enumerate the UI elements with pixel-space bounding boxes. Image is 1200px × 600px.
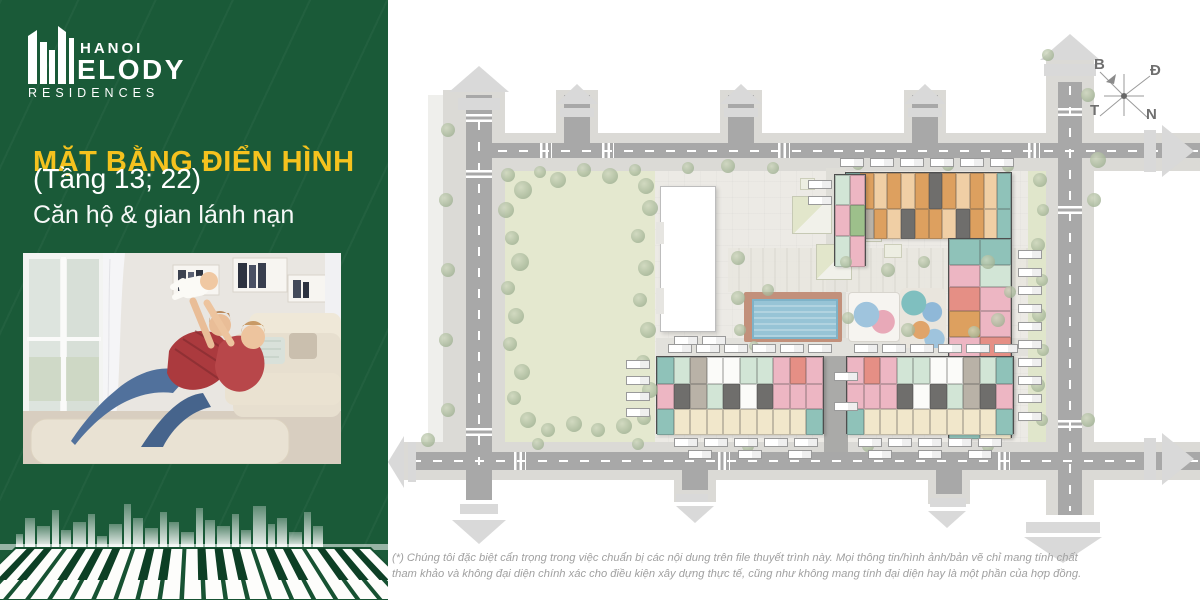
crosswalk bbox=[514, 452, 526, 470]
road-stub-south bbox=[466, 470, 492, 500]
tree-icon bbox=[1087, 193, 1101, 207]
brand-buildings-icon bbox=[28, 20, 74, 84]
tree-icon bbox=[421, 433, 435, 447]
apartment-unit bbox=[657, 409, 674, 435]
road-centerline bbox=[412, 460, 1198, 462]
unit-label-chip bbox=[968, 450, 992, 459]
tree-icon bbox=[1037, 204, 1049, 216]
unit-label-chip bbox=[870, 158, 894, 167]
tower-notch bbox=[656, 222, 664, 244]
tree-icon bbox=[721, 159, 735, 173]
apartment-unit bbox=[740, 409, 757, 435]
apartment-unit bbox=[930, 409, 947, 435]
brand-logo: HANOI ELODY RESIDENCES bbox=[28, 18, 328, 102]
road-arrow-up-icon bbox=[720, 84, 762, 104]
tree-icon bbox=[503, 337, 517, 351]
unit-label-chip bbox=[1018, 358, 1042, 367]
apartment-unit bbox=[690, 409, 707, 435]
apartment-unit bbox=[963, 384, 980, 409]
park-lawn bbox=[500, 163, 655, 448]
unit-label-chip bbox=[794, 438, 818, 447]
compass-east-label: Đ bbox=[1150, 62, 1161, 79]
apartment-unit bbox=[956, 173, 970, 209]
apartment-unit bbox=[963, 357, 980, 384]
unit-label-chip bbox=[978, 438, 1002, 447]
apartment-unit bbox=[880, 357, 897, 384]
tree-icon bbox=[638, 178, 654, 194]
unit-label-chip bbox=[938, 344, 962, 353]
road-arrow-right-icon bbox=[1162, 433, 1194, 485]
tree-icon bbox=[541, 423, 555, 437]
tree-icon bbox=[577, 163, 591, 177]
crosswalk bbox=[540, 143, 552, 158]
compass-north-label: B bbox=[1094, 56, 1105, 73]
road-arrow-bar bbox=[1144, 438, 1156, 480]
apartment-unit bbox=[757, 384, 774, 409]
apartment-unit bbox=[949, 239, 980, 265]
tree-icon bbox=[638, 260, 654, 276]
unit-label-chip bbox=[858, 438, 882, 447]
swimming-pool bbox=[752, 299, 838, 339]
tree-icon bbox=[731, 291, 745, 305]
brochure-page: HANOI ELODY RESIDENCES MẶT BẰNG ĐIỂN HÌN… bbox=[0, 0, 1200, 600]
apartment-unit bbox=[657, 357, 674, 384]
road-stub-south bbox=[936, 470, 962, 494]
road-arrow-left-icon bbox=[388, 436, 404, 488]
tower-footprint bbox=[660, 186, 716, 332]
disclaimer-text: (*) Chúng tôi đặc biệt cẩn trọng trong v… bbox=[392, 551, 1098, 582]
unit-label-chip bbox=[808, 196, 832, 205]
piano-skyline-svg bbox=[0, 498, 388, 600]
apartment-unit bbox=[913, 357, 930, 384]
apartment-unit bbox=[806, 409, 823, 435]
tree-icon bbox=[439, 333, 453, 347]
apartment-unit bbox=[773, 357, 790, 384]
tree-icon bbox=[762, 284, 774, 296]
apartment-unit bbox=[723, 357, 740, 384]
crosswalk bbox=[466, 428, 492, 439]
unit-label-chip bbox=[808, 344, 832, 353]
apartment-unit bbox=[757, 357, 774, 384]
apartment-unit bbox=[897, 384, 914, 409]
window bbox=[23, 253, 105, 429]
tree-icon bbox=[734, 324, 746, 336]
crosswalk bbox=[466, 170, 492, 181]
crosswalk bbox=[1058, 420, 1082, 431]
apartment-unit bbox=[740, 357, 757, 384]
tree-icon bbox=[505, 231, 519, 245]
road-arrow-down-icon bbox=[928, 511, 966, 528]
crosswalk bbox=[466, 114, 492, 125]
apartment-unit bbox=[835, 205, 850, 236]
apartment-unit bbox=[930, 384, 947, 409]
crosswalk bbox=[1028, 143, 1040, 158]
road-arrow-bar bbox=[676, 494, 708, 502]
road-arrow-bar bbox=[1026, 522, 1100, 533]
tree-icon bbox=[439, 193, 453, 207]
apartment-unit bbox=[980, 409, 997, 435]
apartment-unit bbox=[947, 384, 964, 409]
unit-label-chip bbox=[1018, 340, 1042, 349]
tree-icon bbox=[1081, 413, 1095, 427]
road-arrow-bar bbox=[408, 442, 416, 482]
tree-icon bbox=[1090, 152, 1106, 168]
tree-icon bbox=[731, 251, 745, 265]
road-arrow-bar bbox=[458, 98, 500, 110]
apartment-unit bbox=[996, 357, 1013, 384]
road-arrow-bar bbox=[930, 498, 966, 507]
tree-icon bbox=[629, 164, 641, 176]
apartment-unit bbox=[674, 409, 691, 435]
unit-label-chip bbox=[1018, 394, 1042, 403]
tree-icon bbox=[550, 172, 566, 188]
apartment-unit bbox=[887, 173, 901, 209]
tree-icon bbox=[498, 202, 514, 218]
apartment-unit bbox=[864, 384, 881, 409]
unit-label-chip bbox=[788, 450, 812, 459]
piano-skyline-graphic bbox=[0, 498, 388, 600]
unit-label-chip bbox=[882, 344, 906, 353]
apartment-unit bbox=[707, 409, 724, 435]
apartment-unit bbox=[997, 209, 1011, 239]
apartment-unit bbox=[897, 357, 914, 384]
tree-icon bbox=[632, 438, 644, 450]
tree-icon bbox=[602, 168, 618, 184]
left-panel: HANOI ELODY RESIDENCES MẶT BẰNG ĐIỂN HÌN… bbox=[0, 0, 388, 600]
apartment-unit bbox=[913, 409, 930, 435]
pool-deck bbox=[744, 292, 842, 342]
apartment-unit bbox=[901, 209, 915, 239]
unit-label-chip bbox=[834, 372, 858, 381]
road-arrow-bar bbox=[460, 504, 498, 514]
unit-label-chip bbox=[1018, 250, 1042, 259]
apartment-unit bbox=[757, 409, 774, 435]
unit-label-chip bbox=[910, 344, 934, 353]
road-centerline bbox=[478, 100, 480, 465]
unit-label-chip bbox=[674, 336, 698, 345]
apartment-unit bbox=[790, 409, 807, 435]
unit-label-chip bbox=[626, 376, 650, 385]
apartment-unit bbox=[880, 384, 897, 409]
tree-icon bbox=[1081, 88, 1095, 102]
unit-label-chip bbox=[1018, 322, 1042, 331]
apartment-unit bbox=[949, 287, 980, 311]
apartment-unit bbox=[915, 209, 929, 239]
apartment-unit bbox=[930, 357, 947, 384]
tree-icon bbox=[520, 412, 536, 428]
road-arrow-down-icon bbox=[676, 506, 714, 523]
unit-label-chip bbox=[626, 392, 650, 401]
apartment-unit bbox=[690, 384, 707, 409]
unit-label-chip bbox=[960, 158, 984, 167]
unit-label-chip bbox=[966, 344, 990, 353]
apartment-unit bbox=[929, 209, 943, 239]
central-drive bbox=[824, 340, 848, 452]
unit-label-chip bbox=[724, 344, 748, 353]
compass-south-label: N bbox=[1146, 106, 1157, 123]
crosswalk bbox=[1058, 206, 1082, 217]
road-arrow-up-icon bbox=[904, 84, 946, 104]
road-arrow-up-icon bbox=[449, 66, 509, 92]
tree-icon bbox=[1033, 173, 1047, 187]
apartment-unit bbox=[864, 357, 881, 384]
tree-icon bbox=[991, 313, 1005, 327]
apartment-unit bbox=[963, 409, 980, 435]
crosswalk bbox=[778, 143, 790, 158]
apartment-unit bbox=[674, 384, 691, 409]
unit-label-chip bbox=[738, 450, 762, 459]
tree-icon bbox=[514, 181, 532, 199]
unit-label-chip bbox=[834, 402, 858, 411]
apartment-unit bbox=[997, 173, 1011, 209]
unit-label-chip bbox=[752, 344, 776, 353]
unit-label-chip bbox=[764, 438, 788, 447]
apartment-unit bbox=[913, 384, 930, 409]
site-plan: B Đ T N (*) Chúng tôi đặc biệt cẩn trọng… bbox=[388, 0, 1200, 600]
tree-icon bbox=[441, 123, 455, 137]
apartment-unit bbox=[970, 209, 984, 239]
tower-notch bbox=[656, 288, 664, 314]
tree-icon bbox=[642, 200, 658, 216]
tree-icon bbox=[441, 403, 455, 417]
unit-label-chip bbox=[626, 408, 650, 417]
apartment-unit bbox=[996, 409, 1013, 435]
tree-icon bbox=[767, 162, 779, 174]
apartment-unit bbox=[674, 357, 691, 384]
apartment-unit bbox=[806, 384, 823, 409]
apartment-unit bbox=[880, 409, 897, 435]
road-arrow-bar bbox=[560, 108, 594, 117]
apartment-unit bbox=[657, 384, 674, 409]
tree-icon bbox=[901, 323, 915, 337]
apartment-unit bbox=[773, 384, 790, 409]
road-arrow-bar bbox=[908, 108, 942, 117]
apartment-unit bbox=[806, 357, 823, 384]
tree-icon bbox=[441, 263, 455, 277]
apartment-unit bbox=[942, 173, 956, 209]
apartment-unit bbox=[835, 175, 850, 205]
apartment-unit bbox=[956, 209, 970, 239]
tree-icon bbox=[842, 312, 854, 324]
unit-label-chip bbox=[780, 344, 804, 353]
building-north-annex bbox=[834, 174, 866, 266]
tree-icon bbox=[981, 255, 995, 269]
unit-label-chip bbox=[702, 336, 726, 345]
tree-icon bbox=[534, 166, 546, 178]
unit-label-chip bbox=[990, 158, 1014, 167]
tree-icon bbox=[881, 263, 895, 277]
apartment-unit bbox=[980, 384, 997, 409]
brand-name-elody: ELODY bbox=[77, 54, 186, 86]
tree-icon bbox=[1042, 49, 1054, 61]
apartment-unit bbox=[707, 357, 724, 384]
apartment-unit bbox=[847, 409, 864, 435]
tree-icon bbox=[532, 438, 544, 450]
apartment-unit bbox=[996, 384, 1013, 409]
building-north-wing bbox=[845, 172, 1012, 238]
tree-icon bbox=[1004, 286, 1016, 298]
crosswalk bbox=[718, 452, 730, 470]
building-south-east bbox=[846, 356, 1014, 434]
kids-pool bbox=[848, 292, 900, 342]
crosswalk bbox=[1058, 108, 1082, 119]
compass-rose: B Đ T N bbox=[1088, 54, 1172, 138]
unit-label-chip bbox=[854, 344, 878, 353]
apartment-unit bbox=[874, 173, 888, 209]
apartment-unit bbox=[790, 357, 807, 384]
tree-icon bbox=[514, 364, 530, 380]
apartment-unit bbox=[850, 175, 865, 205]
unit-label-chip bbox=[674, 438, 698, 447]
apartment-unit bbox=[887, 209, 901, 239]
apartment-unit bbox=[984, 173, 998, 209]
tree-icon bbox=[633, 293, 647, 307]
tree-icon bbox=[640, 322, 656, 338]
tree-icon bbox=[918, 256, 930, 268]
unit-label-chip bbox=[930, 158, 954, 167]
unit-label-chip bbox=[868, 450, 892, 459]
apartment-unit bbox=[850, 205, 865, 236]
apartment-unit bbox=[723, 384, 740, 409]
unit-label-chip bbox=[734, 438, 758, 447]
apartment-unit bbox=[897, 409, 914, 435]
tree-icon bbox=[968, 326, 980, 338]
compass-west-label: T bbox=[1090, 102, 1099, 119]
unit-label-chip bbox=[668, 344, 692, 353]
road-stub-south bbox=[682, 470, 708, 490]
unit-label-chip bbox=[1018, 412, 1042, 421]
apartment-unit bbox=[915, 173, 929, 209]
unit-label-chip bbox=[918, 450, 942, 459]
apartment-unit bbox=[980, 357, 997, 384]
unit-label-chip bbox=[994, 344, 1018, 353]
unit-label-chip bbox=[1018, 268, 1042, 277]
tree-icon bbox=[566, 416, 582, 432]
building-south-west bbox=[656, 356, 824, 434]
apartment-unit bbox=[874, 209, 888, 239]
unit-label-chip bbox=[948, 438, 972, 447]
brand-name-residences: RESIDENCES bbox=[28, 86, 159, 100]
road-arrow-up-icon bbox=[556, 84, 598, 104]
apartment-unit bbox=[864, 409, 881, 435]
apartment-unit bbox=[850, 236, 865, 267]
family-photo bbox=[23, 253, 341, 464]
apartment-unit bbox=[947, 357, 964, 384]
crosswalk bbox=[602, 143, 614, 158]
unit-label-chip bbox=[840, 158, 864, 167]
tree-icon bbox=[591, 423, 605, 437]
road-centerline bbox=[1069, 86, 1071, 511]
tree-icon bbox=[631, 229, 645, 243]
apartment-unit bbox=[740, 384, 757, 409]
apartment-unit bbox=[984, 209, 998, 239]
unit-label-chip bbox=[696, 344, 720, 353]
road-arrow-bar bbox=[724, 108, 758, 117]
unit-label-chip bbox=[900, 158, 924, 167]
unit-label-chip bbox=[1018, 376, 1042, 385]
unit-label-chip bbox=[1018, 286, 1042, 295]
unit-label-chip bbox=[808, 180, 832, 189]
unit-label-chip bbox=[704, 438, 728, 447]
apartment-unit bbox=[790, 384, 807, 409]
tree-icon bbox=[501, 281, 515, 295]
apartment-unit bbox=[723, 409, 740, 435]
apartment-unit bbox=[970, 173, 984, 209]
tree-icon bbox=[501, 168, 515, 182]
unit-label-chip bbox=[688, 450, 712, 459]
apartment-unit bbox=[929, 173, 943, 209]
tree-icon bbox=[682, 162, 694, 174]
tree-icon bbox=[507, 391, 521, 405]
apartment-unit bbox=[901, 173, 915, 209]
playground bbox=[900, 288, 946, 348]
apartment-unit bbox=[690, 357, 707, 384]
tree-icon bbox=[511, 253, 529, 271]
apartment-unit bbox=[707, 384, 724, 409]
plaza-pad bbox=[884, 244, 902, 258]
unit-label-chip bbox=[918, 438, 942, 447]
unit-label-chip bbox=[1018, 304, 1042, 313]
tree-icon bbox=[508, 308, 524, 324]
road-arrow-down-icon bbox=[452, 520, 506, 544]
crosswalk bbox=[998, 452, 1010, 470]
tree-icon bbox=[840, 256, 852, 268]
unit-label-chip bbox=[888, 438, 912, 447]
page-subtitle: (Tầng 13; 22) bbox=[33, 163, 201, 195]
unit-label-chip bbox=[626, 360, 650, 369]
page-description: Căn hộ & gian lánh nạn bbox=[33, 201, 294, 230]
apartment-unit bbox=[942, 209, 956, 239]
apartment-unit bbox=[773, 409, 790, 435]
apartment-unit bbox=[947, 409, 964, 435]
tree-icon bbox=[616, 418, 632, 434]
apartment-unit bbox=[949, 265, 980, 287]
